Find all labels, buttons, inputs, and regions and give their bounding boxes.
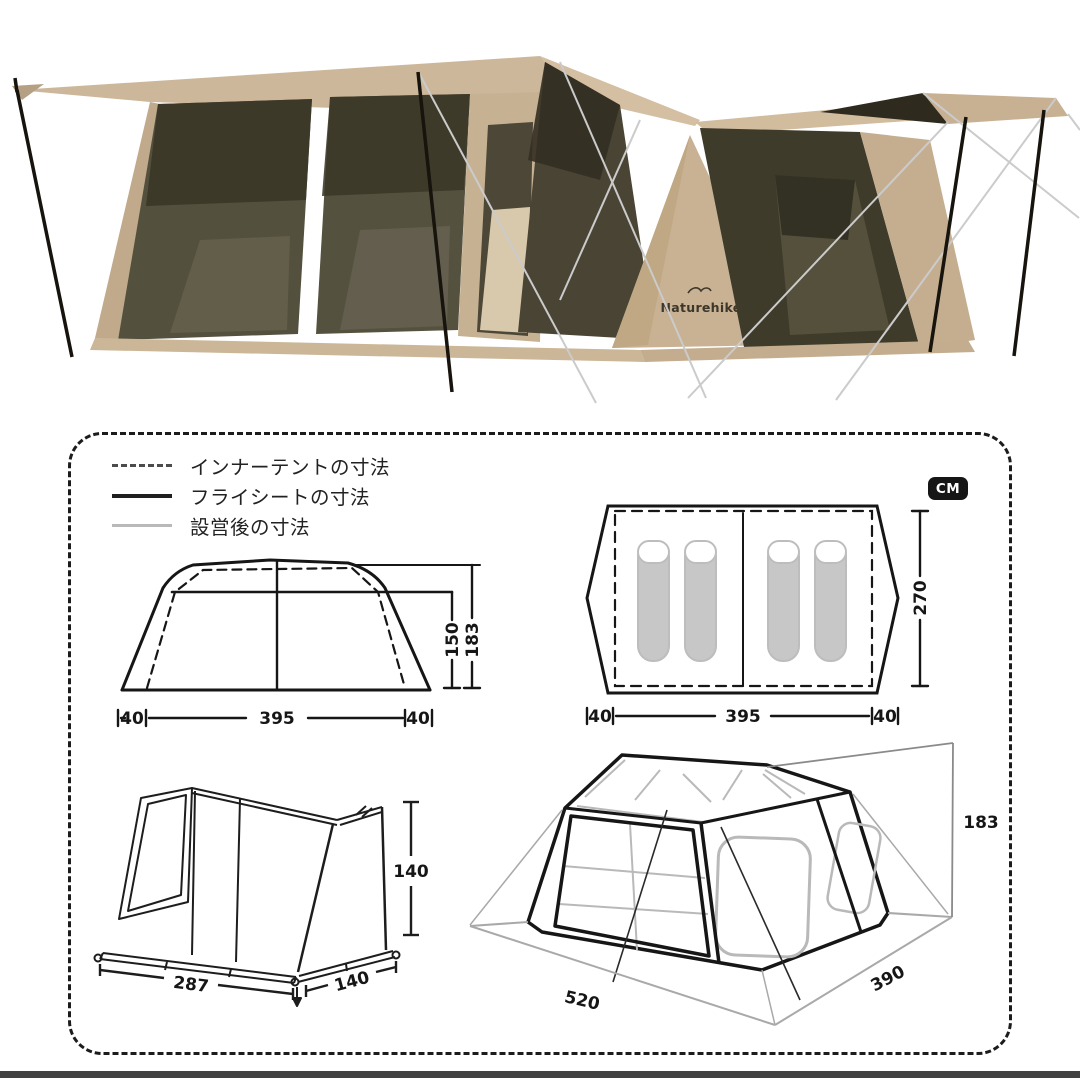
legend-label: インナーテントの寸法	[190, 451, 390, 480]
entrance-shadow	[775, 175, 855, 240]
tent-product-photo: Naturehike	[0, 0, 1080, 430]
sleeping-bag	[768, 541, 799, 661]
legend-label: 設営後の寸法	[190, 511, 310, 540]
dashed-line-swatch	[112, 464, 172, 467]
top-view-depth-label: 270	[911, 580, 931, 616]
top-view-width-label: 395	[725, 707, 761, 727]
front-view-inner-height-label: 150	[443, 622, 463, 658]
flysheet-height-label: 183	[963, 813, 999, 833]
front-view-diagram: 150 183 40 395 40	[100, 550, 490, 735]
brand-logo-text: Naturehike	[660, 300, 741, 315]
legend: インナーテントの寸法 フライシートの寸法 設営後の寸法	[112, 453, 390, 538]
solid-dark-line-swatch	[112, 494, 172, 498]
top-view-left-offset-label: 40	[588, 707, 612, 727]
window-shadow	[146, 99, 312, 206]
legend-item-inner-tent: インナーテントの寸法	[112, 453, 390, 478]
top-view-right-offset-label: 40	[873, 707, 897, 727]
legend-item-after-setup: 設営後の寸法	[112, 513, 390, 538]
legend-item-flysheet: フライシートの寸法	[112, 483, 390, 508]
side-awning	[923, 93, 1068, 124]
flysheet-depth-label: 390	[868, 962, 909, 996]
sleeping-bag	[638, 541, 669, 661]
solid-gray-line-swatch	[112, 524, 172, 527]
sleeping-bag	[815, 541, 846, 661]
next-image-edge-strip	[0, 1071, 1080, 1078]
flysheet-3d-diagram: 183 520 390	[465, 742, 1015, 1047]
inner-tent-height-label: 140	[393, 862, 429, 882]
sleeping-bag	[685, 541, 716, 661]
window-shadow	[322, 94, 470, 196]
inner-tent-3d-diagram: 140 287 140	[88, 778, 433, 1013]
legend-label: フライシートの寸法	[190, 481, 370, 510]
top-view-diagram: 270 40 395 40	[575, 496, 935, 731]
front-view-right-offset-label: 40	[406, 709, 430, 729]
front-view-outer-height-label: 183	[463, 622, 483, 658]
bottom-skirt-left	[90, 338, 645, 362]
front-view-left-offset-label: 40	[120, 709, 144, 729]
front-view-width-label: 395	[259, 709, 295, 729]
inner-tent-width-label: 287	[172, 973, 210, 997]
flysheet-width-label: 520	[562, 987, 601, 1015]
